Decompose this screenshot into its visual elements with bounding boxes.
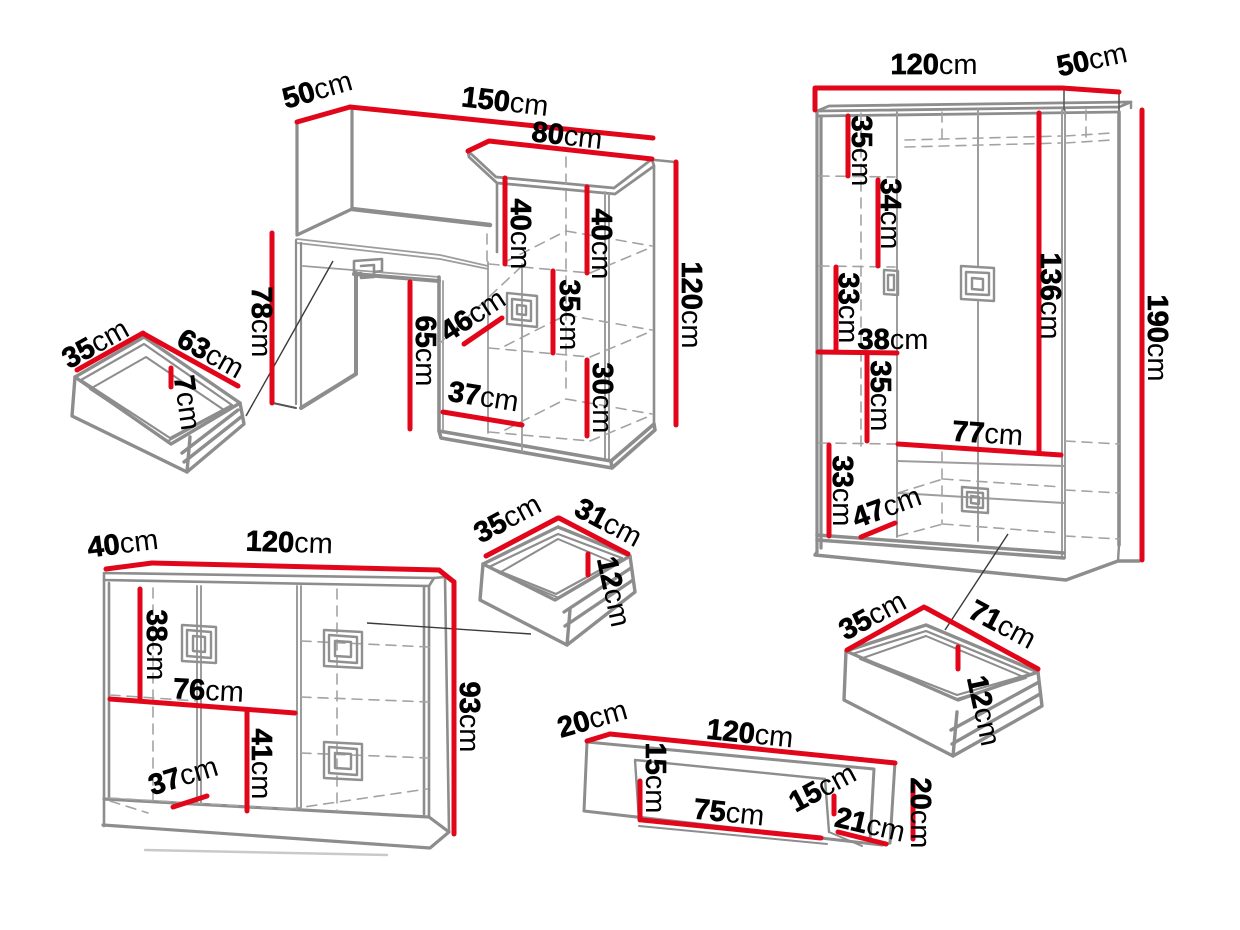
- svg-text:120cm: 120cm: [245, 525, 333, 560]
- svg-text:40cm: 40cm: [585, 209, 617, 280]
- svg-text:76cm: 76cm: [172, 673, 245, 709]
- svg-text:35cm: 35cm: [469, 488, 547, 550]
- svg-text:65cm: 65cm: [409, 316, 441, 387]
- svg-text:37cm: 37cm: [145, 751, 222, 802]
- svg-text:41cm: 41cm: [245, 729, 277, 800]
- svg-text:35cm: 35cm: [553, 280, 585, 351]
- svg-text:120cm: 120cm: [705, 714, 795, 755]
- svg-text:190cm: 190cm: [1141, 294, 1173, 381]
- svg-text:12cm: 12cm: [590, 554, 636, 630]
- svg-text:7cm: 7cm: [167, 374, 206, 433]
- svg-text:50cm: 50cm: [1054, 37, 1130, 83]
- svg-text:40cm: 40cm: [86, 524, 160, 564]
- svg-text:78cm: 78cm: [245, 287, 277, 358]
- svg-text:15cm: 15cm: [639, 743, 671, 814]
- svg-text:38cm: 38cm: [858, 324, 929, 356]
- svg-text:20cm: 20cm: [904, 778, 936, 849]
- svg-text:136cm: 136cm: [1034, 252, 1066, 339]
- svg-text:35cm: 35cm: [845, 116, 877, 187]
- svg-text:30cm: 30cm: [586, 363, 618, 434]
- svg-text:80cm: 80cm: [530, 116, 604, 156]
- svg-text:38cm: 38cm: [140, 610, 172, 681]
- svg-text:77cm: 77cm: [951, 416, 1024, 453]
- svg-text:120cm: 120cm: [675, 261, 707, 348]
- svg-text:35cm: 35cm: [864, 361, 896, 432]
- svg-text:40cm: 40cm: [504, 199, 536, 270]
- svg-text:120cm: 120cm: [890, 49, 977, 81]
- svg-text:93cm: 93cm: [453, 682, 485, 753]
- svg-text:34cm: 34cm: [874, 179, 906, 250]
